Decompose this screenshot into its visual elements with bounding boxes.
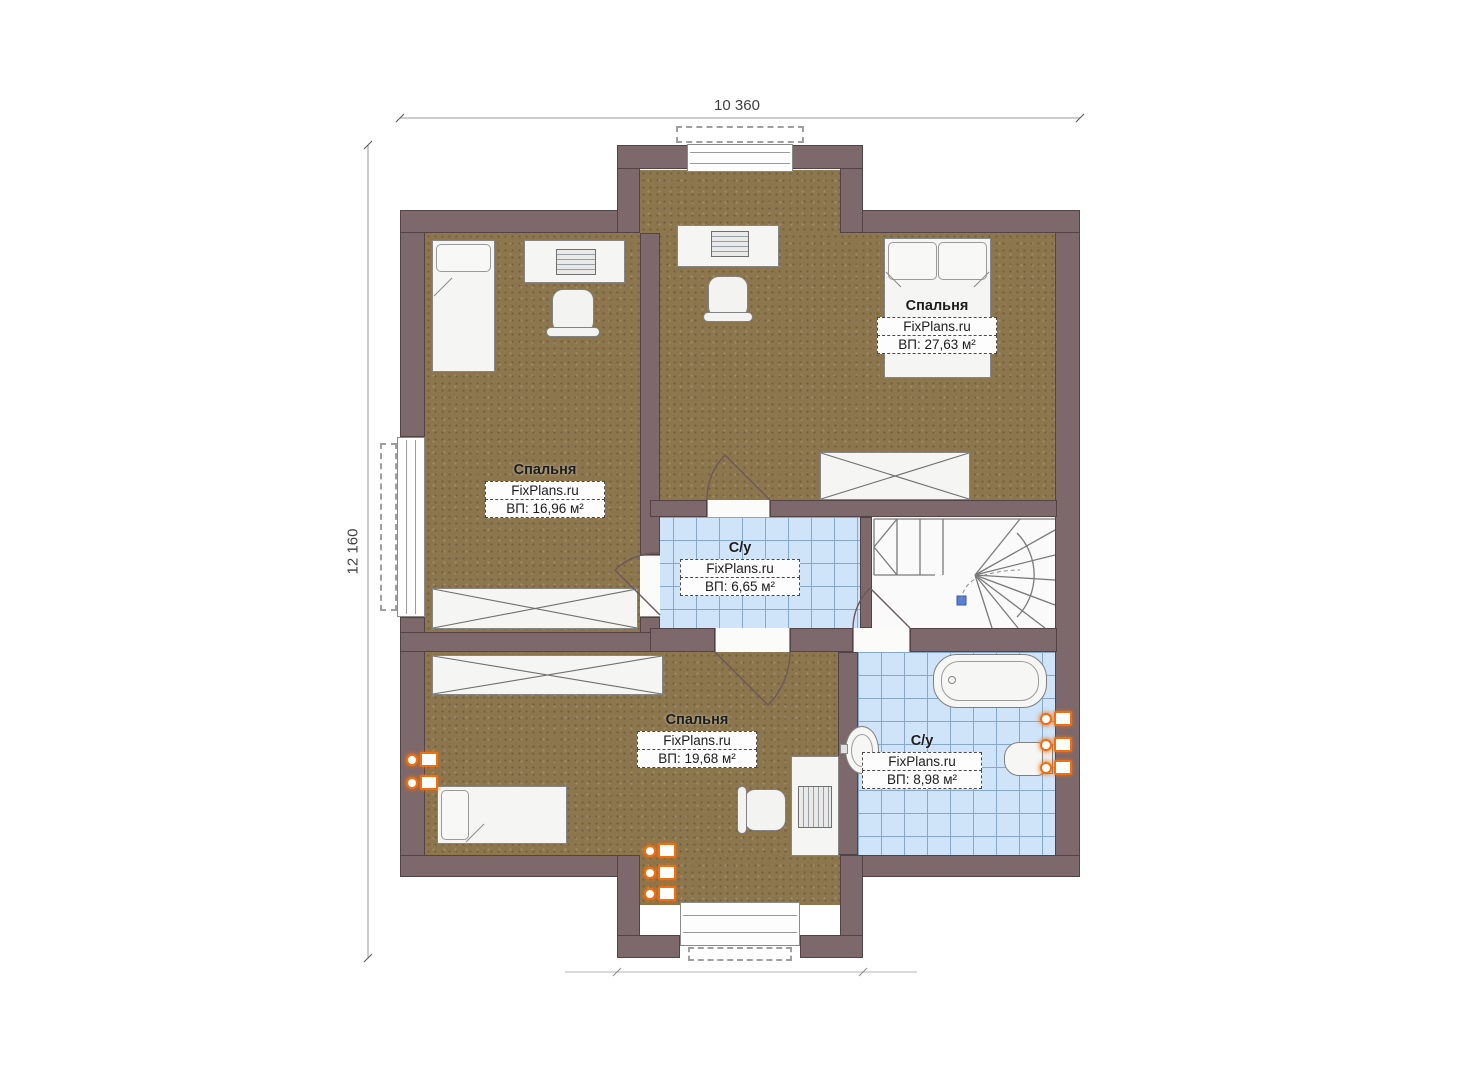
radiator-icon xyxy=(1040,760,1072,775)
interior-wall-bath-top-b xyxy=(770,500,1057,517)
radiator-body xyxy=(658,886,676,901)
bed-pillow xyxy=(436,244,491,272)
interior-wall-bath-top-a xyxy=(650,500,707,517)
radiator-body xyxy=(1054,711,1072,726)
radiator-icon xyxy=(644,865,676,880)
radiator-icon xyxy=(644,886,676,901)
chair-back xyxy=(737,786,747,834)
door-opening-bath-middle-top xyxy=(707,500,770,517)
radiator-body xyxy=(420,752,438,767)
watermark: FixPlans.ru xyxy=(680,559,800,578)
room-label-bedroom-left: Спальня FixPlans.ru ВП: 16,96 м² xyxy=(485,462,605,518)
dormer-top-wall-a xyxy=(617,145,688,169)
exterior-wall-right xyxy=(1055,210,1080,877)
exterior-wall-left-upper xyxy=(400,210,425,437)
radiator-valve xyxy=(644,845,656,857)
radiator-icon xyxy=(406,775,438,790)
radiator-valve xyxy=(1040,762,1052,774)
door-opening-bath-middle-bottom xyxy=(715,628,790,652)
bed-pillow xyxy=(441,790,469,840)
radiator-icon xyxy=(1040,737,1072,752)
dimension-height-label: 12 160 xyxy=(344,529,361,575)
dormer-bottom-wall-a xyxy=(617,935,680,958)
exterior-wall-bottom-right xyxy=(840,855,1080,877)
dimension-width-label: 10 360 xyxy=(714,97,760,114)
radiator-icon xyxy=(644,843,676,858)
watermark: FixPlans.ru xyxy=(485,481,605,500)
chair-back xyxy=(703,312,753,322)
floor-plan-canvas: Спальня FixPlans.ru ВП: 16,96 м² Спальня… xyxy=(0,0,1474,1080)
printer-icon xyxy=(556,249,596,275)
wardrobe-icon xyxy=(432,588,638,629)
bathtub-drain xyxy=(948,676,956,684)
faucet-icon xyxy=(840,744,848,754)
dormer-top-floor xyxy=(640,170,840,233)
radiator-valve xyxy=(406,777,418,789)
dormer-top-wall-b xyxy=(792,145,863,169)
exterior-wall-top-left xyxy=(400,210,640,233)
room-name: Спальня xyxy=(666,712,729,728)
interior-wall-bath-bottom-c xyxy=(910,628,1057,652)
room-area: ВП: 19,68 м² xyxy=(637,749,757,768)
room-label-bathroom-middle: С/у FixPlans.ru ВП: 6,65 м² xyxy=(680,540,800,596)
chair-back xyxy=(546,327,600,337)
window-awning-left xyxy=(380,443,397,611)
radiator-valve xyxy=(644,888,656,900)
dormer-bottom-wall-b xyxy=(800,935,863,958)
interior-wall-stair-divider xyxy=(860,517,872,628)
room-area: ВП: 8,98 м² xyxy=(862,770,982,789)
room-area: ВП: 16,96 м² xyxy=(485,499,605,518)
room-label-bedroom-bottom: Спальня FixPlans.ru ВП: 19,68 м² xyxy=(637,712,757,768)
room-name: С/у xyxy=(911,733,934,749)
watermark: FixPlans.ru xyxy=(637,731,757,750)
door-opening-bedroom-left xyxy=(640,555,660,617)
interior-wall-bath-bottom-b xyxy=(790,628,853,652)
laptop-icon xyxy=(798,786,832,828)
wardrobe-icon xyxy=(820,452,970,500)
watermark: FixPlans.ru xyxy=(877,317,997,336)
room-label-bedroom-top-right: Спальня FixPlans.ru ВП: 27,63 м² xyxy=(877,298,997,354)
exterior-wall-top-right xyxy=(840,210,1080,233)
radiator-body xyxy=(1054,737,1072,752)
radiator-icon xyxy=(406,752,438,767)
window-icon xyxy=(680,902,800,946)
radiator-valve xyxy=(406,754,418,766)
window-awning-top xyxy=(676,126,804,143)
radiator-body xyxy=(658,843,676,858)
room-name: Спальня xyxy=(514,462,577,478)
window-icon xyxy=(687,144,793,172)
room-area: ВП: 27,63 м² xyxy=(877,335,997,354)
radiator-valve xyxy=(1040,713,1052,725)
radiator-body xyxy=(1054,760,1072,775)
window-icon xyxy=(397,437,425,617)
bed-pillow xyxy=(888,242,937,280)
exterior-wall-bottom-left xyxy=(400,855,640,877)
radiator-body xyxy=(658,865,676,880)
radiator-body xyxy=(420,775,438,790)
interior-wall-bath-bottom-a xyxy=(650,628,715,652)
radiator-valve xyxy=(644,867,656,879)
room-area: ВП: 6,65 м² xyxy=(680,577,800,596)
radiator-valve xyxy=(1040,739,1052,751)
radiator-icon xyxy=(1040,711,1072,726)
wardrobe-icon xyxy=(432,655,663,695)
room-name: С/у xyxy=(729,540,752,556)
door-opening-bath-bottom xyxy=(853,628,910,652)
interior-wall-bedrooms-horizontal xyxy=(400,632,660,652)
exterior-wall-left-lower xyxy=(400,617,425,877)
window-awning-bottom xyxy=(688,947,792,961)
stair-hall-floor xyxy=(865,517,1055,628)
room-label-bathroom-bottom-right: С/у FixPlans.ru ВП: 8,98 м² xyxy=(862,733,982,789)
bed-pillow xyxy=(938,242,987,280)
office-chair-icon xyxy=(744,789,786,831)
laptop-icon xyxy=(711,231,749,257)
toilet-icon xyxy=(1004,742,1044,776)
room-name: Спальня xyxy=(906,298,969,314)
watermark: FixPlans.ru xyxy=(862,752,982,771)
